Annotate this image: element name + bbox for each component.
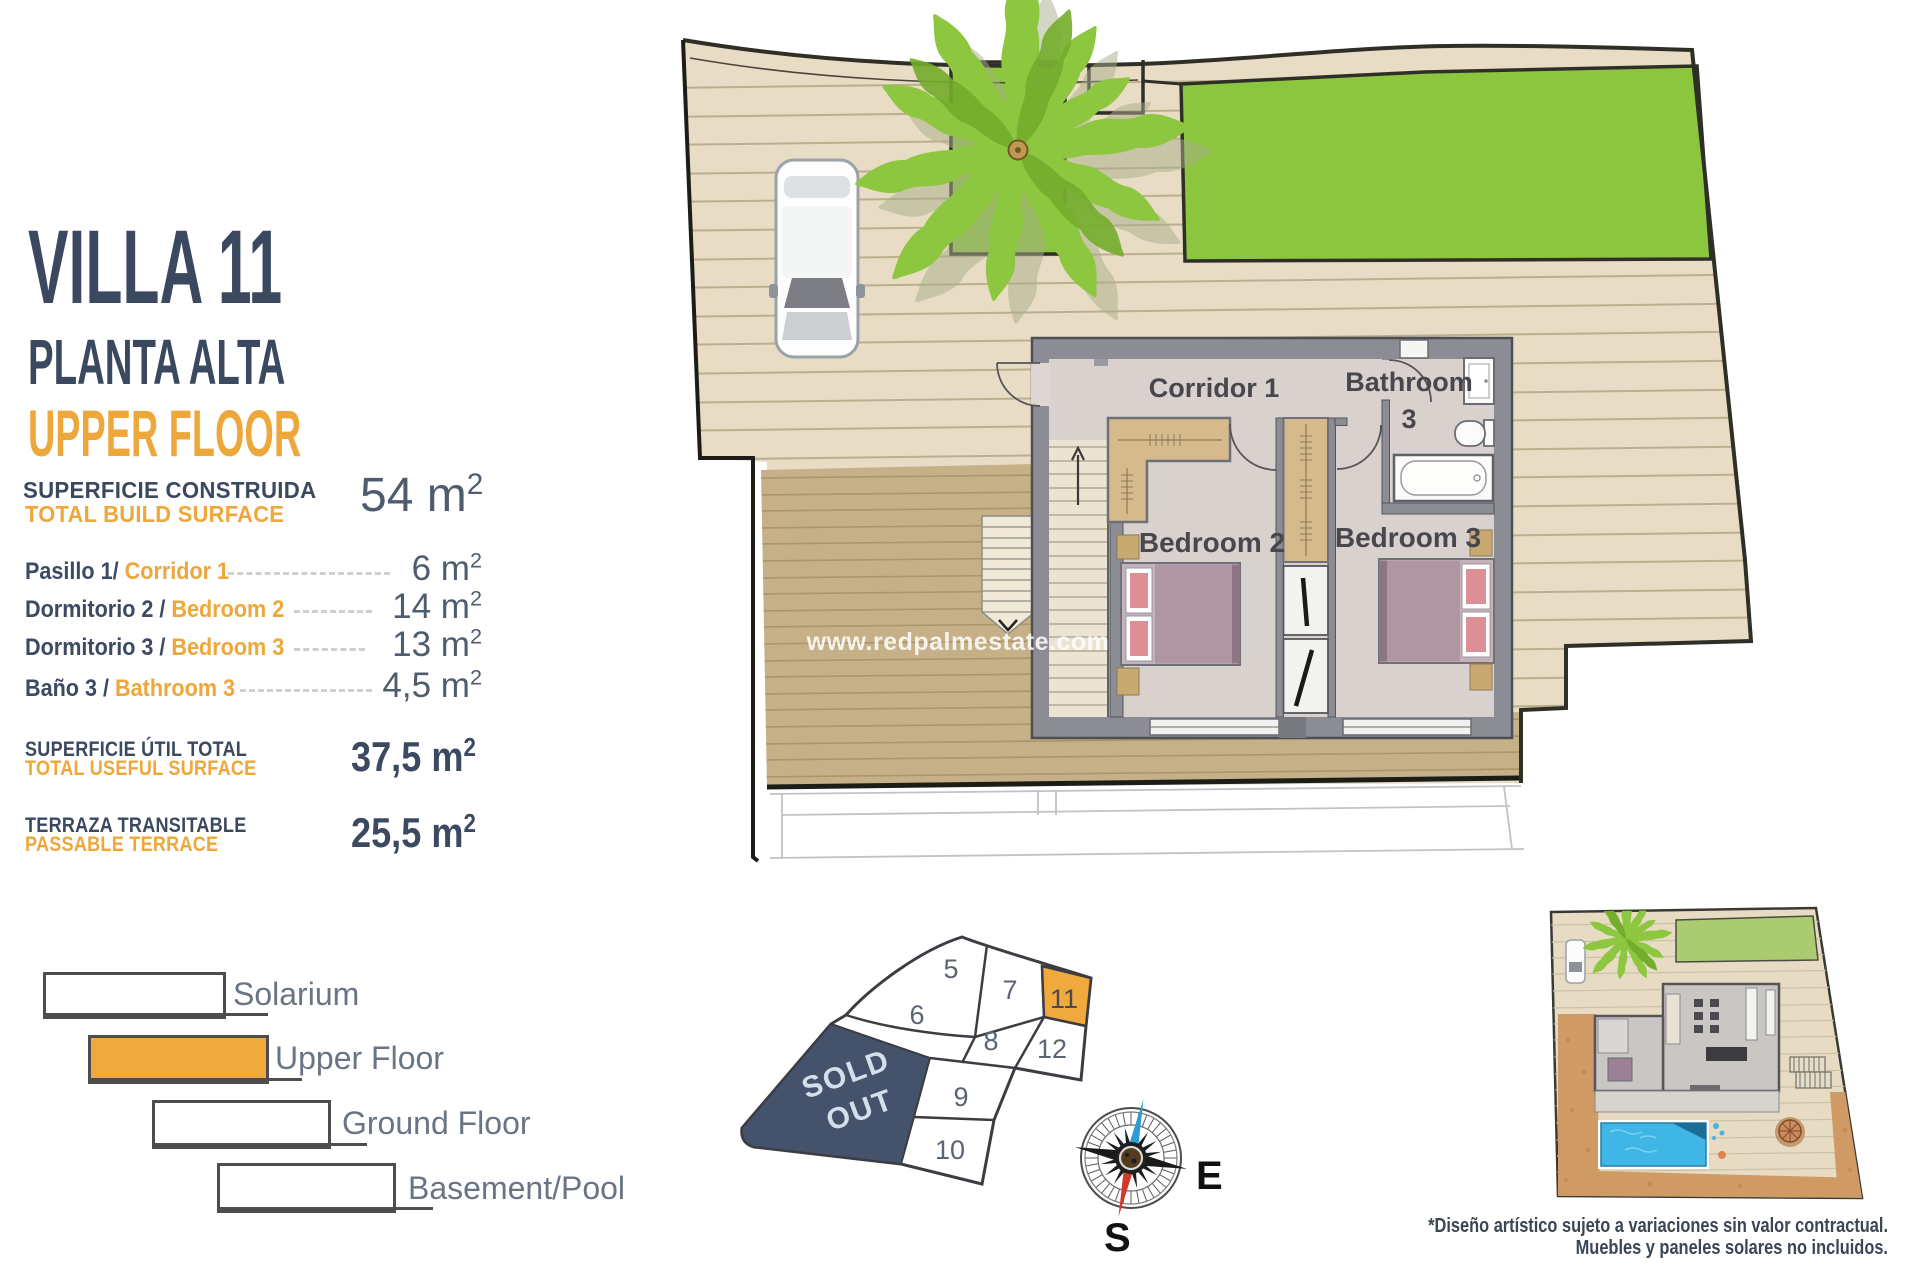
svg-text:*Diseño artístico sujeto a var: *Diseño artístico sujeto a variaciones s…: [1428, 1213, 1888, 1236]
svg-text:3: 3: [1401, 404, 1416, 434]
svg-text:12: 12: [1037, 1034, 1067, 1064]
svg-text:8: 8: [983, 1026, 998, 1056]
svg-text:Corridor 1: Corridor 1: [1149, 373, 1280, 403]
svg-text:10: 10: [935, 1135, 965, 1165]
svg-text:E: E: [1196, 1154, 1223, 1198]
svg-text:S: S: [1104, 1216, 1131, 1260]
svg-text:Bedroom 3: Bedroom 3: [1335, 522, 1481, 553]
svg-text:11: 11: [1050, 984, 1078, 1014]
svg-text:Bathroom: Bathroom: [1345, 367, 1473, 397]
svg-text:7: 7: [1002, 975, 1017, 1005]
svg-text:Muebles y paneles solares no i: Muebles y paneles solares no incluidos.: [1576, 1235, 1888, 1258]
svg-text:5: 5: [943, 954, 958, 984]
svg-text:9: 9: [953, 1082, 968, 1112]
svg-text:6: 6: [909, 1000, 924, 1030]
svg-text:Bedroom 2: Bedroom 2: [1139, 527, 1285, 558]
svg-text:www.redpalmestate.com: www.redpalmestate.com: [806, 628, 1110, 656]
